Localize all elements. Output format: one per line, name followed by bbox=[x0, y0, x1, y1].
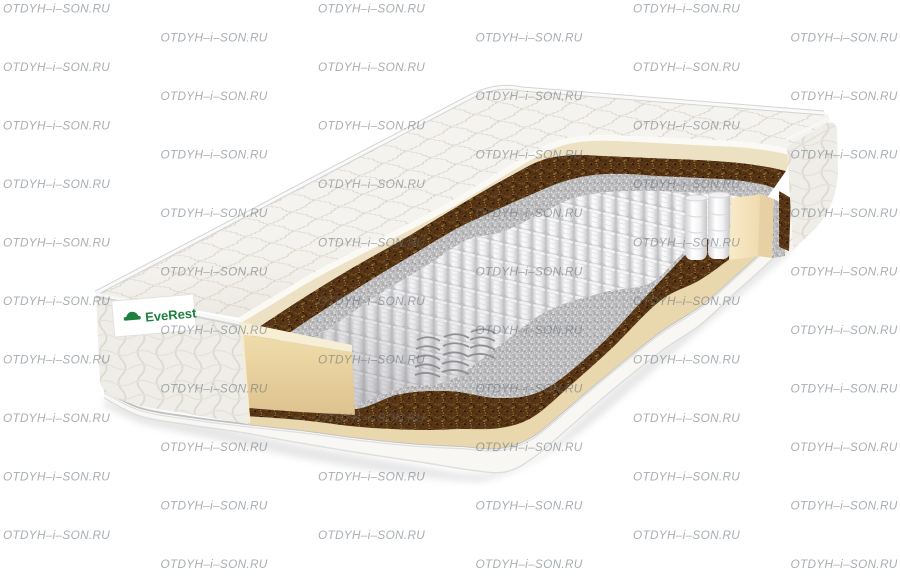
svg-text:OTDYH–i–SON.RU: OTDYH–i–SON.RU bbox=[476, 499, 583, 513]
svg-text:OTDYH–i–SON.RU: OTDYH–i–SON.RU bbox=[318, 2, 425, 16]
svg-text:OTDYH–i–SON.RU: OTDYH–i–SON.RU bbox=[161, 206, 268, 220]
svg-text:OTDYH–i–SON.RU: OTDYH–i–SON.RU bbox=[3, 177, 110, 191]
svg-text:OTDYH–i–SON.RU: OTDYH–i–SON.RU bbox=[3, 119, 110, 133]
svg-text:OTDYH–i–SON.RU: OTDYH–i–SON.RU bbox=[633, 2, 740, 16]
svg-text:OTDYH–i–SON.RU: OTDYH–i–SON.RU bbox=[633, 411, 740, 425]
svg-text:OTDYH–i–SON.RU: OTDYH–i–SON.RU bbox=[633, 177, 740, 191]
svg-text:OTDYH–i–SON.RU: OTDYH–i–SON.RU bbox=[476, 89, 583, 103]
svg-text:OTDYH–i–SON.RU: OTDYH–i–SON.RU bbox=[476, 31, 583, 45]
svg-text:OTDYH–i–SON.RU: OTDYH–i–SON.RU bbox=[318, 470, 425, 484]
svg-text:OTDYH–i–SON.RU: OTDYH–i–SON.RU bbox=[3, 2, 110, 16]
svg-text:OTDYH–i–SON.RU: OTDYH–i–SON.RU bbox=[161, 382, 268, 396]
svg-text:OTDYH–i–SON.RU: OTDYH–i–SON.RU bbox=[476, 382, 583, 396]
svg-text:OTDYH–i–SON.RU: OTDYH–i–SON.RU bbox=[791, 89, 898, 103]
svg-text:OTDYH–i–SON.RU: OTDYH–i–SON.RU bbox=[791, 557, 898, 571]
svg-text:OTDYH–i–SON.RU: OTDYH–i–SON.RU bbox=[161, 323, 268, 337]
svg-text:OTDYH–i–SON.RU: OTDYH–i–SON.RU bbox=[476, 206, 583, 220]
svg-text:OTDYH–i–SON.RU: OTDYH–i–SON.RU bbox=[476, 557, 583, 571]
svg-text:OTDYH–i–SON.RU: OTDYH–i–SON.RU bbox=[476, 323, 583, 337]
svg-text:OTDYH–i–SON.RU: OTDYH–i–SON.RU bbox=[791, 31, 898, 45]
svg-text:OTDYH–i–SON.RU: OTDYH–i–SON.RU bbox=[791, 382, 898, 396]
svg-text:OTDYH–i–SON.RU: OTDYH–i–SON.RU bbox=[476, 265, 583, 279]
svg-text:OTDYH–i–SON.RU: OTDYH–i–SON.RU bbox=[476, 148, 583, 162]
svg-text:OTDYH–i–SON.RU: OTDYH–i–SON.RU bbox=[633, 294, 740, 308]
svg-text:OTDYH–i–SON.RU: OTDYH–i–SON.RU bbox=[791, 499, 898, 513]
svg-text:OTDYH–i–SON.RU: OTDYH–i–SON.RU bbox=[633, 236, 740, 250]
svg-text:OTDYH–i–SON.RU: OTDYH–i–SON.RU bbox=[791, 323, 898, 337]
svg-text:OTDYH–i–SON.RU: OTDYH–i–SON.RU bbox=[3, 411, 110, 425]
svg-text:OTDYH–i–SON.RU: OTDYH–i–SON.RU bbox=[161, 31, 268, 45]
svg-text:OTDYH–i–SON.RU: OTDYH–i–SON.RU bbox=[476, 440, 583, 454]
svg-text:OTDYH–i–SON.RU: OTDYH–i–SON.RU bbox=[633, 528, 740, 542]
svg-text:OTDYH–i–SON.RU: OTDYH–i–SON.RU bbox=[3, 528, 110, 542]
svg-text:OTDYH–i–SON.RU: OTDYH–i–SON.RU bbox=[161, 265, 268, 279]
svg-text:OTDYH–i–SON.RU: OTDYH–i–SON.RU bbox=[161, 499, 268, 513]
svg-text:OTDYH–i–SON.RU: OTDYH–i–SON.RU bbox=[318, 119, 425, 133]
svg-text:OTDYH–i–SON.RU: OTDYH–i–SON.RU bbox=[791, 148, 898, 162]
svg-text:OTDYH–i–SON.RU: OTDYH–i–SON.RU bbox=[161, 89, 268, 103]
svg-text:OTDYH–i–SON.RU: OTDYH–i–SON.RU bbox=[791, 440, 898, 454]
svg-text:OTDYH–i–SON.RU: OTDYH–i–SON.RU bbox=[318, 177, 425, 191]
svg-text:OTDYH–i–SON.RU: OTDYH–i–SON.RU bbox=[3, 236, 110, 250]
svg-text:OTDYH–i–SON.RU: OTDYH–i–SON.RU bbox=[791, 265, 898, 279]
svg-text:OTDYH–i–SON.RU: OTDYH–i–SON.RU bbox=[161, 148, 268, 162]
svg-text:OTDYH–i–SON.RU: OTDYH–i–SON.RU bbox=[633, 353, 740, 367]
svg-text:OTDYH–i–SON.RU: OTDYH–i–SON.RU bbox=[633, 119, 740, 133]
svg-text:OTDYH–i–SON.RU: OTDYH–i–SON.RU bbox=[161, 440, 268, 454]
svg-text:OTDYH–i–SON.RU: OTDYH–i–SON.RU bbox=[3, 470, 110, 484]
svg-text:OTDYH–i–SON.RU: OTDYH–i–SON.RU bbox=[791, 206, 898, 220]
svg-text:OTDYH–i–SON.RU: OTDYH–i–SON.RU bbox=[318, 236, 425, 250]
svg-text:OTDYH–i–SON.RU: OTDYH–i–SON.RU bbox=[318, 353, 425, 367]
svg-text:OTDYH–i–SON.RU: OTDYH–i–SON.RU bbox=[318, 528, 425, 542]
svg-text:OTDYH–i–SON.RU: OTDYH–i–SON.RU bbox=[318, 294, 425, 308]
svg-text:OTDYH–i–SON.RU: OTDYH–i–SON.RU bbox=[318, 60, 425, 74]
svg-text:OTDYH–i–SON.RU: OTDYH–i–SON.RU bbox=[161, 557, 268, 571]
svg-text:OTDYH–i–SON.RU: OTDYH–i–SON.RU bbox=[633, 470, 740, 484]
svg-text:OTDYH–i–SON.RU: OTDYH–i–SON.RU bbox=[3, 60, 110, 74]
svg-text:OTDYH–i–SON.RU: OTDYH–i–SON.RU bbox=[3, 353, 110, 367]
svg-text:OTDYH–i–SON.RU: OTDYH–i–SON.RU bbox=[3, 294, 110, 308]
svg-text:OTDYH–i–SON.RU: OTDYH–i–SON.RU bbox=[318, 411, 425, 425]
svg-text:OTDYH–i–SON.RU: OTDYH–i–SON.RU bbox=[633, 60, 740, 74]
